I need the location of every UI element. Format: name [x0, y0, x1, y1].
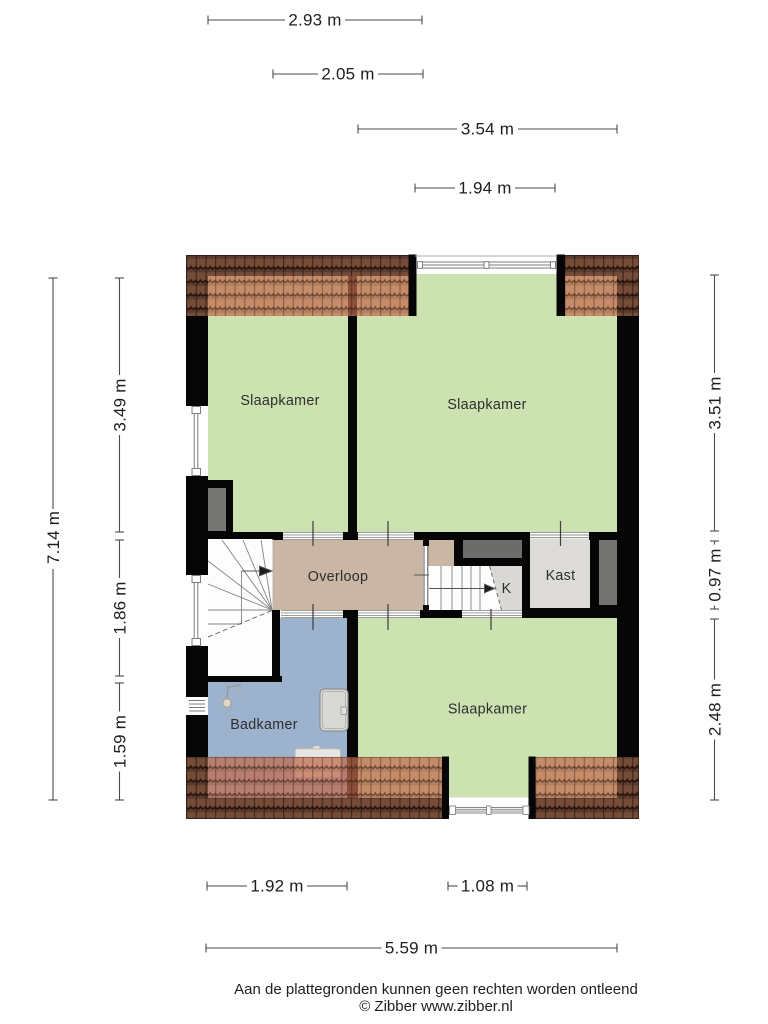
svg-text:3.51 m: 3.51 m [706, 376, 725, 429]
svg-text:Kast: Kast [546, 568, 576, 584]
svg-text:1.86 m: 1.86 m [111, 581, 130, 634]
svg-text:2.48 m: 2.48 m [706, 683, 725, 736]
svg-text:Slaapkamer: Slaapkamer [448, 702, 527, 718]
svg-text:0.97 m: 0.97 m [706, 548, 725, 601]
svg-text:Slaapkamer: Slaapkamer [240, 393, 319, 409]
svg-text:2.05 m: 2.05 m [321, 65, 374, 84]
svg-text:1.92 m: 1.92 m [250, 877, 303, 896]
svg-text:1.59 m: 1.59 m [111, 715, 130, 768]
svg-text:3.54 m: 3.54 m [461, 120, 514, 139]
svg-text:Aan de plattegronden kunnen ge: Aan de plattegronden kunnen geen rechten… [234, 981, 638, 998]
svg-text:7.14 m: 7.14 m [44, 511, 63, 564]
svg-text:3.49 m: 3.49 m [111, 378, 130, 431]
svg-text:1.08 m: 1.08 m [461, 877, 514, 896]
svg-text:Overloop: Overloop [308, 569, 368, 585]
svg-text:1.94 m: 1.94 m [458, 179, 511, 198]
svg-text:K: K [502, 581, 512, 597]
svg-text:© Zibber www.zibber.nl: © Zibber www.zibber.nl [359, 998, 513, 1015]
svg-text:5.59 m: 5.59 m [385, 939, 438, 958]
svg-text:Slaapkamer: Slaapkamer [447, 397, 526, 413]
svg-text:2.93 m: 2.93 m [288, 11, 341, 30]
svg-text:Badkamer: Badkamer [230, 717, 298, 733]
